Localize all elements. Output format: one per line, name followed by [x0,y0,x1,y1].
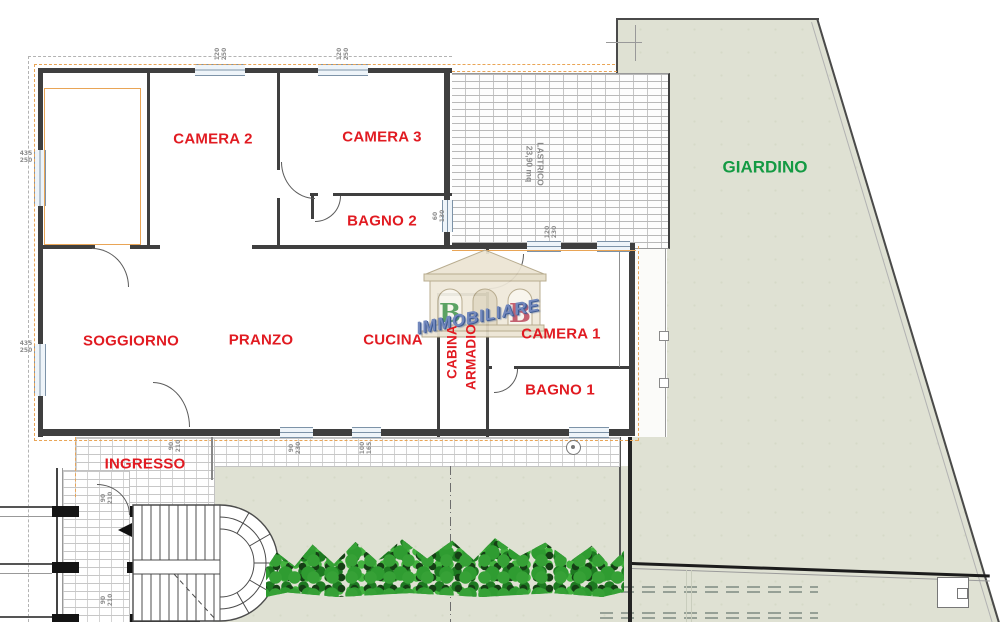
room-label-soggiorno: SOGGIORNO [83,334,179,349]
room-label-pranzo: PRANZO [229,333,294,348]
guide-dashed-top [28,56,452,57]
room-label-bagno1: BAGNO 1 [525,383,595,398]
retaining-line-3a [0,616,52,618]
gate-box-inner [957,588,968,599]
retaining-line-1b [0,516,52,517]
room-label-camera3: CAMERA 3 [342,130,421,145]
dim-terrace-window: 120 230 [545,226,559,239]
lastrico-terrace [450,73,670,249]
property-line-bottom [34,440,638,441]
dim-entrance-door: 90 210 [169,440,183,453]
dim-bagno2-window: 60 130 [433,210,447,223]
wall-top [38,68,452,73]
guide-dashed-left [28,56,29,622]
room-label-camera1: CAMERA 1 [521,327,600,342]
stair-direction-arrow [118,523,132,537]
retaining-line-1a [0,506,52,508]
dim-left-wall-upper: 435 250 [20,151,33,165]
wall-bagno1-top-stub [486,366,492,369]
retaining-line-2b [0,573,52,574]
room-label-ingresso: INGRESSO [105,457,186,472]
property-line-lastrico-top [452,71,617,72]
paving-south-band [213,437,620,467]
room-label-camera2: CAMERA 2 [173,132,252,147]
balcony-outline-nw [44,88,141,245]
wall-camera1-inner-face [619,249,620,367]
wall-camera2-left [147,68,150,247]
dim-stair-door-lower: 90 210 [101,594,115,607]
window-south-2 [352,427,381,438]
paving-edge-right [211,437,213,480]
floor-plan: B B IMMOBILIARE CAMERA 2 CAMERA 3 BAGNO … [0,0,1000,622]
wall-corridor-a [38,245,95,249]
wall-camera2-3b [277,198,280,247]
dim-top-window-left: 120 250 [215,48,229,61]
parking-dashes-row1 [600,586,818,593]
garden-path-line1 [686,570,687,622]
dim-bottom-window-right: 100 165 [360,442,374,455]
garden-path-line2 [691,570,692,622]
survey-cross-h [606,42,642,43]
garden-wall-vertical-thick [628,437,632,622]
property-line-right [638,246,639,441]
drain-symbol-dot [571,445,575,449]
window-top-left [195,64,245,76]
garden-boundary-left-notch [616,18,618,76]
retaining-line-2a [0,563,52,565]
wall-corridor-b [130,245,160,249]
wall-bagno1-top [514,366,635,369]
wall-bagno2-top [333,193,452,196]
window-south-1 [280,427,313,438]
ledge-pillar-1 [659,331,669,341]
window-west-lower [34,344,46,396]
lastrico-label: LASTRICO 23,90 mq [523,142,546,185]
survey-cross-v [635,25,636,61]
dim-bottom-window-left: 90 230 [289,442,303,455]
room-label-bagno2: BAGNO 2 [347,214,417,229]
wall-bottom [38,429,635,436]
wall-right-east [629,245,635,436]
room-label-cucina: CUCINA [363,333,423,348]
window-top-right [318,64,368,76]
garden-label: GIARDINO [723,159,808,176]
window-bagno1-south [569,427,609,438]
property-line-left [34,64,35,441]
parking-dashes-row2 [600,612,818,619]
room-label-cabina: CABINA [445,325,459,379]
dim-top-window-right: 120 250 [337,48,351,61]
room-label-armadio: ARMADIO [464,324,478,390]
property-line-top [34,64,615,65]
ledge-pillar-2 [659,378,669,388]
staircase [48,478,280,622]
garden-boundary-top [616,18,819,20]
dim-stair-door-upper: 90 210 [101,492,115,505]
dim-left-wall-lower: 435 250 [20,341,33,355]
wall-camera2-3a [277,68,280,170]
